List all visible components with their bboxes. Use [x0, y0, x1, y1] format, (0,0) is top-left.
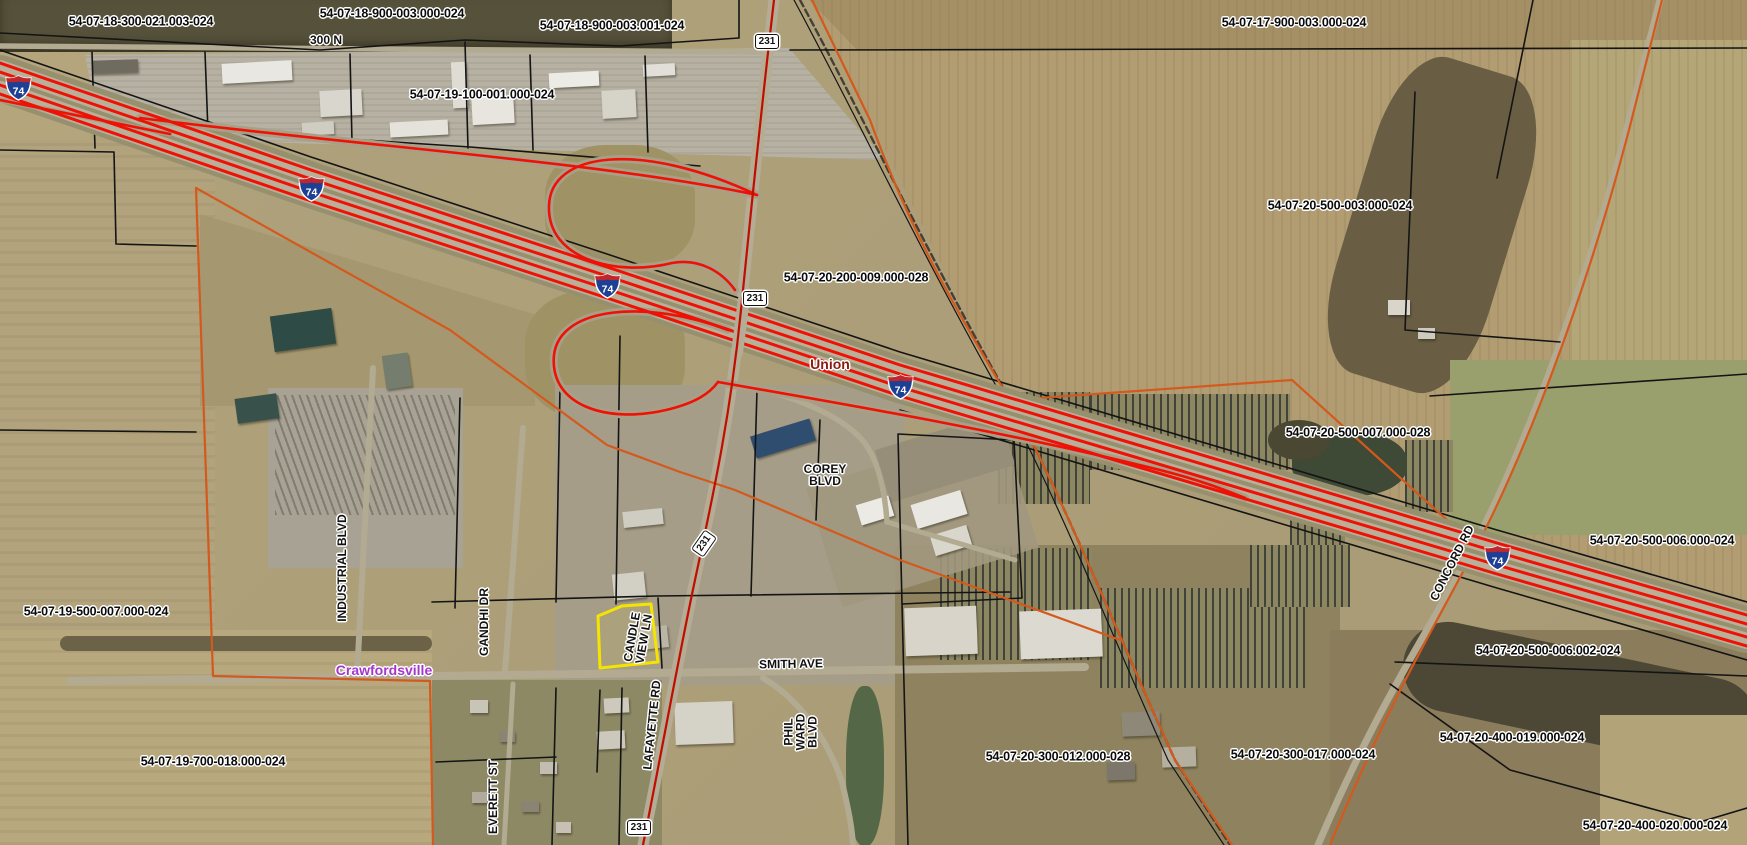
parcel-id-label: 54-07-20-400-019.000-024 — [1440, 732, 1585, 745]
road-name-label: PHIL WARD BLVD — [783, 714, 820, 751]
us-route-231-shield: 231 — [755, 34, 779, 49]
road-name-label: INDUSTRIAL BLVD — [336, 514, 348, 622]
place-name-label: Union — [810, 357, 850, 371]
road-name-label: CANDLE VIEW LN — [622, 611, 655, 664]
us-route-231-shield: 231 — [627, 820, 651, 835]
parcel-id-label: 54-07-19-100-001.000-024 — [410, 89, 555, 102]
place-name-label: Crawfordsville — [336, 663, 432, 677]
interstate-74-shield: 74 — [1484, 545, 1511, 576]
parcel-id-label: 54-07-19-500-007.000-024 — [24, 606, 169, 619]
road-name-label: GANDHI DR — [478, 588, 490, 656]
parcel-id-label: 54-07-20-400-020.000-024 — [1583, 820, 1728, 833]
svg-text:74: 74 — [894, 385, 906, 397]
interstate-74-shield: 74 — [594, 273, 621, 304]
map-canvas[interactable]: 54-07-18-300-021.003-02454-07-18-900-003… — [0, 0, 1747, 845]
interstate-74-shield: 74 — [298, 176, 325, 207]
parcel-id-label: 54-07-18-300-021.003-024 — [69, 16, 214, 29]
interstate-74-shield: 74 — [887, 374, 914, 405]
parcel-id-label: 54-07-20-500-007.000-028 — [1286, 427, 1431, 440]
road-name-label: 300 N — [310, 34, 342, 46]
parcel-id-label: 54-07-20-300-017.000-024 — [1231, 749, 1376, 762]
us-route-231-shield: 231 — [743, 291, 767, 306]
road-name-label: LAFAYETTE RD — [641, 680, 663, 770]
road-name-label: COREY BLVD — [804, 463, 847, 487]
interstate-74-shield: 74 — [5, 75, 32, 106]
road-name-label: EVERETT ST — [487, 760, 499, 834]
parcel-id-label: 54-07-17-900-003.000-024 — [1222, 17, 1367, 30]
parcel-id-label: 54-07-20-300-012.000-028 — [986, 751, 1131, 764]
svg-text:74: 74 — [601, 284, 613, 296]
parcel-id-label: 54-07-20-500-006.002-024 — [1476, 645, 1621, 658]
parcel-id-label: 54-07-20-500-003.000-024 — [1268, 200, 1413, 213]
parcel-id-label: 54-07-18-900-003.000-024 — [320, 8, 465, 21]
road-name-label: SMITH AVE — [759, 657, 823, 670]
parcel-id-label: 54-07-18-900-003.001-024 — [540, 20, 685, 33]
svg-text:74: 74 — [305, 187, 317, 199]
svg-text:74: 74 — [12, 86, 24, 98]
road-name-label: CONCORD RD — [1428, 523, 1476, 602]
us-route-231-shield: 231 — [691, 529, 717, 557]
parcel-id-label: 54-07-19-700-018.000-024 — [141, 756, 286, 769]
svg-text:74: 74 — [1491, 556, 1503, 568]
parcel-id-label: 54-07-20-200-009.000-028 — [784, 272, 929, 285]
parcel-id-label: 54-07-20-500-006.000-024 — [1590, 535, 1735, 548]
